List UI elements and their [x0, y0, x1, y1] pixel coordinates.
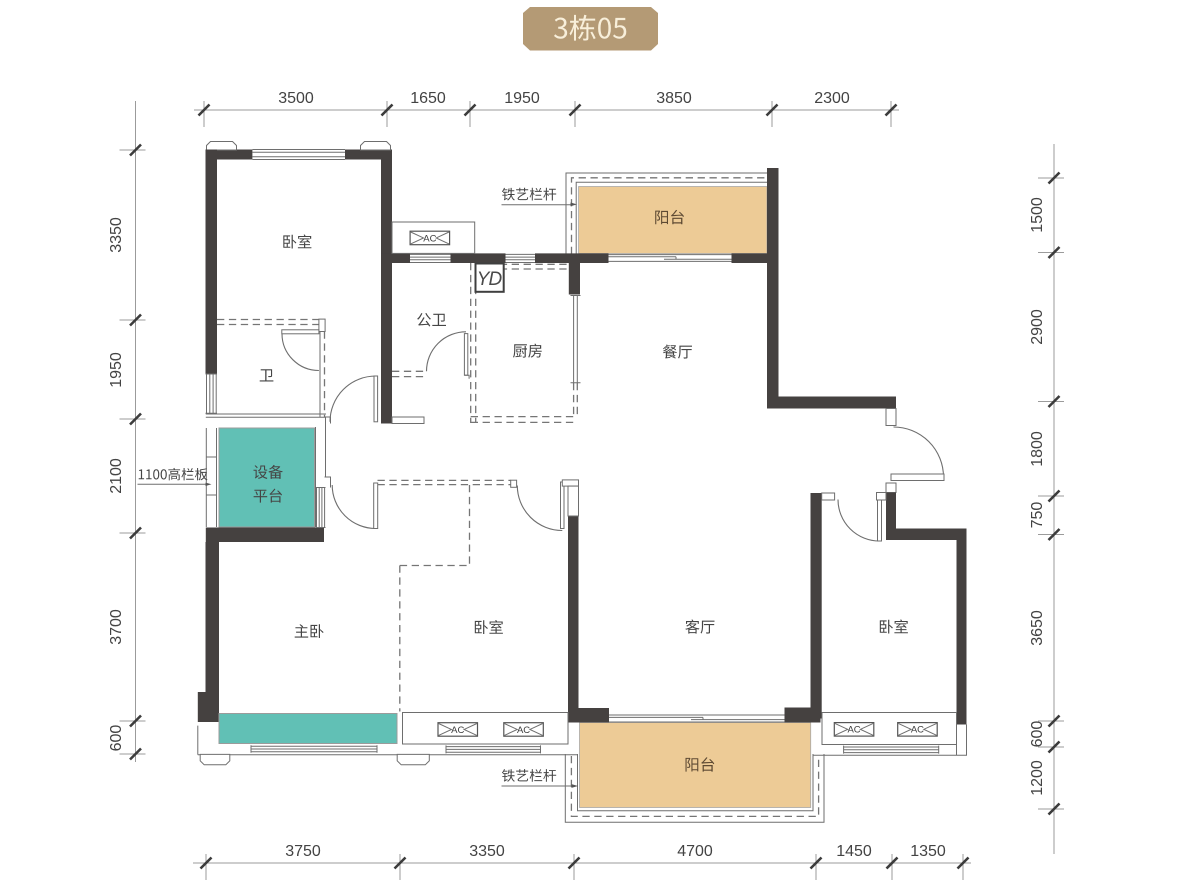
svg-text:2100: 2100: [108, 458, 125, 494]
svg-text:AC: AC: [423, 233, 436, 244]
svg-text:2300: 2300: [814, 90, 850, 107]
svg-text:AC: AC: [517, 725, 530, 736]
svg-text:4700: 4700: [677, 843, 713, 860]
svg-text:1950: 1950: [504, 90, 540, 107]
svg-text:600: 600: [108, 725, 125, 752]
svg-text:3500: 3500: [278, 90, 314, 107]
svg-text:750: 750: [1029, 502, 1046, 529]
svg-text:3850: 3850: [656, 90, 692, 107]
svg-text:1950: 1950: [108, 352, 125, 388]
svg-text:1500: 1500: [1029, 197, 1046, 233]
svg-text:AC: AC: [911, 725, 924, 736]
svg-text:3350: 3350: [108, 217, 125, 253]
svg-text:1450: 1450: [836, 843, 872, 860]
svg-text:AC: AC: [847, 725, 860, 736]
svg-text:3750: 3750: [285, 843, 321, 860]
svg-text:AC: AC: [451, 725, 464, 736]
svg-text:600: 600: [1029, 721, 1046, 748]
svg-text:1350: 1350: [910, 843, 946, 860]
svg-text:YD: YD: [477, 269, 503, 290]
svg-text:3650: 3650: [1029, 610, 1046, 646]
svg-text:1800: 1800: [1029, 431, 1046, 467]
svg-text:3350: 3350: [469, 843, 505, 860]
svg-text:1200: 1200: [1029, 760, 1046, 796]
svg-text:3700: 3700: [108, 609, 125, 645]
svg-text:1650: 1650: [410, 90, 446, 107]
svg-text:2900: 2900: [1029, 309, 1046, 345]
